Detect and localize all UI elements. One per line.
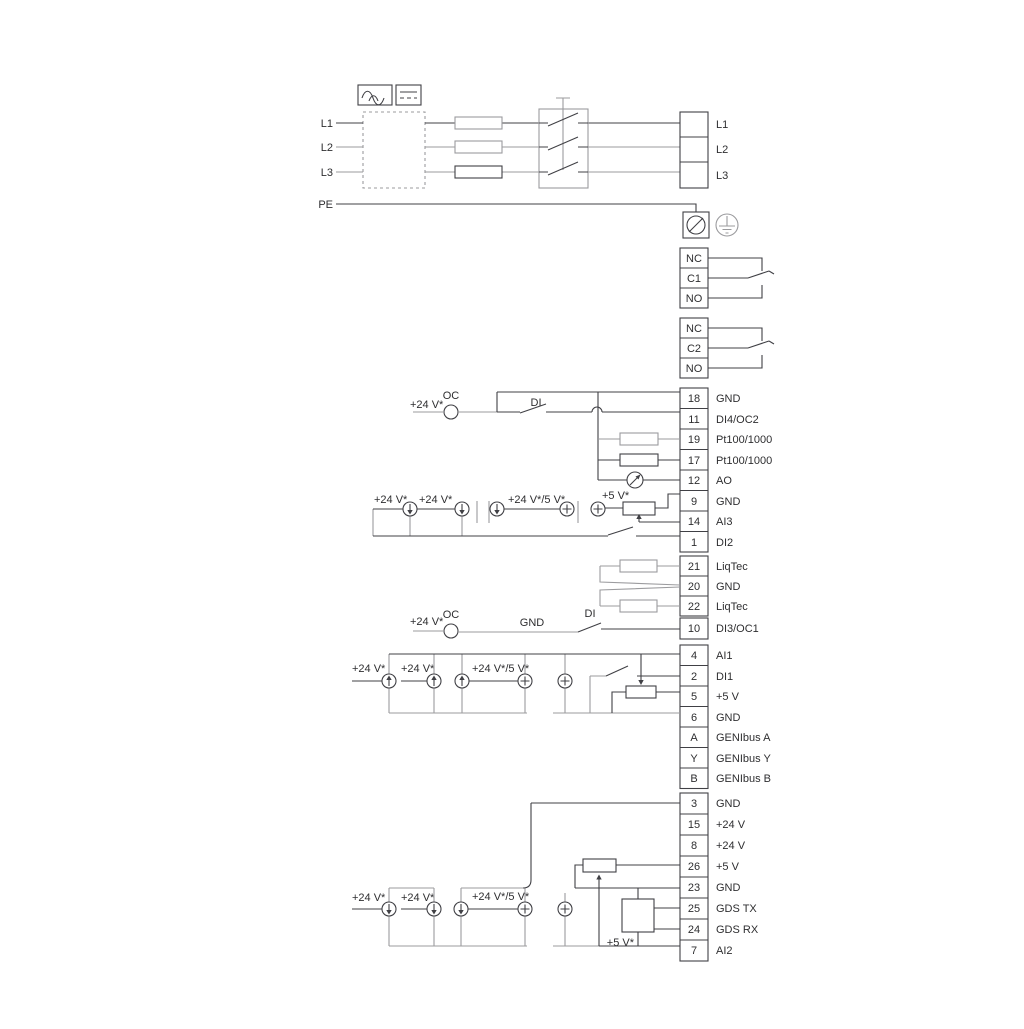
plus5-label-b: +5 V*	[602, 490, 630, 502]
relay2-nc: NC	[686, 323, 702, 335]
mains-out-block: L1 L2 L3	[680, 112, 728, 188]
ta-label: GENIbus A	[716, 732, 771, 744]
t22-num: 22	[688, 601, 700, 613]
t24-label: GDS RX	[716, 924, 759, 936]
t21-num: 21	[688, 561, 700, 573]
t5-num: 5	[691, 691, 697, 703]
mains-out-terminals	[680, 112, 708, 188]
t15-label: +24 V	[716, 819, 746, 831]
oc-collector-icon-c	[444, 624, 458, 638]
ai1-potentiometer	[626, 686, 656, 698]
gnd-label-c: GND	[520, 617, 545, 629]
ai1-options: +24 V* +24 V* +24 V*/5 V*	[352, 654, 680, 713]
pt100-resistor-2	[620, 454, 658, 466]
relay2-contact	[708, 328, 774, 368]
t25-num: 25	[688, 903, 700, 915]
t23-num: 23	[688, 882, 700, 894]
t6-num: 6	[691, 712, 697, 724]
di3-switch	[578, 623, 680, 632]
liqtec-sensor-1	[620, 560, 657, 572]
t9-label: GND	[716, 496, 741, 508]
fuse-l1	[455, 117, 502, 129]
t7-num: 7	[691, 945, 697, 957]
relay1-no: NO	[686, 293, 703, 305]
relay1-contact	[708, 258, 774, 298]
out-l2-label: L2	[716, 144, 728, 156]
disconnect-switch	[539, 98, 588, 188]
t18-label: GND	[716, 393, 741, 405]
ty-label: GENIbus Y	[716, 753, 771, 765]
ty-num: Y	[690, 753, 698, 765]
relay2-c2: C2	[687, 343, 701, 355]
di-label-c: DI	[585, 608, 596, 620]
relay1-c1: C1	[687, 273, 701, 285]
t1-num: 1	[691, 537, 697, 549]
t18-num: 18	[688, 393, 700, 405]
pe-ground-terminals	[683, 212, 738, 238]
fuse-l3	[455, 166, 502, 178]
plus245-label-e: +24 V*/5 V*	[472, 891, 530, 903]
t4-num: 4	[691, 650, 697, 662]
relay2-section: NC C2 NO	[680, 318, 774, 378]
t14-num: 14	[688, 516, 700, 528]
relay1-nc: NC	[686, 253, 702, 265]
pt100-resistor-1	[620, 433, 658, 445]
t5-label: +5 V	[716, 691, 740, 703]
t15-num: 15	[688, 819, 700, 831]
tb-label: GENIbus B	[716, 773, 771, 785]
phase-l2-label: L2	[321, 142, 333, 154]
t17-num: 17	[688, 455, 700, 467]
tb-num: B	[690, 773, 697, 785]
t19-label: Pt100/1000	[716, 434, 772, 446]
t25-label: GDS TX	[716, 903, 757, 915]
t6-label: GND	[716, 712, 741, 724]
ai2-options: +24 V* +24 V* +24 V*/5 V* +5 V*	[352, 803, 680, 949]
wire-hop-a	[592, 407, 602, 412]
t2-num: 2	[691, 671, 697, 683]
plus24-label-d2: +24 V*	[401, 663, 435, 675]
strip-a: 18GND 11DI4/OC2 19Pt100/1000 17Pt100/100…	[680, 388, 772, 552]
relay1-section: NC C1 NO	[680, 248, 774, 308]
ai2-pot-wiper-arrow	[596, 875, 601, 880]
t2-label: DI1	[716, 671, 733, 683]
pump-wiring-diagram: L1 L2 L3 PE L1 L2 L3	[0, 0, 1024, 1024]
di-switch-wiring-a	[497, 392, 680, 480]
t17-label: Pt100/1000	[716, 455, 772, 467]
oc-label-c: OC	[443, 609, 460, 621]
ai3-options: +24 V* +24 V* +24 V*/5 V* +5 V*	[373, 490, 680, 536]
t3-num: 3	[691, 798, 697, 810]
phase-pe-label: PE	[318, 199, 333, 211]
oc-di-circuit-top: +24 V* OC DI	[410, 390, 680, 488]
t9-num: 9	[691, 496, 697, 508]
plus24-label-e1: +24 V*	[352, 892, 386, 904]
phase-l1-label: L1	[321, 118, 333, 130]
t7-label: AI2	[716, 945, 733, 957]
t3-label: GND	[716, 798, 741, 810]
pe-wire	[336, 204, 696, 212]
plus24-label-b1: +24 V*	[374, 494, 408, 506]
t24-num: 24	[688, 924, 700, 936]
plus24-label-c: +24 V*	[410, 616, 444, 628]
plus24-label-b2: +24 V*	[419, 494, 453, 506]
t22-label: LiqTec	[716, 601, 748, 613]
plus24-label-e2: +24 V*	[401, 892, 435, 904]
strip-c: 4AI1 2DI1 5+5 V 6GND AGENIbus A YGENIbus…	[680, 645, 771, 789]
out-l3-label: L3	[716, 170, 728, 182]
t8-label: +24 V	[716, 840, 746, 852]
relay2-no: NO	[686, 363, 703, 375]
t12-label: AO	[716, 475, 732, 487]
t26-num: 26	[688, 861, 700, 873]
liqtec-section: 21LiqTec 20GND 22LiqTec	[600, 556, 748, 616]
t11-label: DI4/OC2	[716, 414, 759, 426]
out-l1-label: L1	[716, 119, 728, 131]
oc-collector-icon-a	[444, 405, 458, 419]
ai1-pot-wiper-arrow	[638, 680, 643, 685]
t1-label: DI2	[716, 537, 733, 549]
plus5-label-e: +5 V*	[607, 937, 635, 949]
plus24-label-d1: +24 V*	[352, 663, 386, 675]
t19-num: 19	[688, 434, 700, 446]
wiring-diagram-page: L1 L2 L3 PE L1 L2 L3	[0, 0, 1024, 1024]
plus245-label-d: +24 V*/5 V*	[472, 663, 530, 675]
liqtec-sensor-2	[620, 600, 657, 612]
oc-label-a: OC	[443, 390, 460, 402]
plus24-label-a: +24 V*	[410, 399, 444, 411]
ai3-potentiometer	[623, 502, 655, 515]
t10-num: 10	[688, 623, 700, 635]
drive-dashed-box	[363, 112, 425, 188]
t26-label: +5 V	[716, 861, 740, 873]
strip-d: 3GND 15+24 V 8+24 V 26+5 V 23GND 25GDS T…	[680, 793, 759, 961]
ai2-potentiometer	[583, 859, 616, 872]
plus245-label-b: +24 V*/5 V*	[508, 494, 566, 506]
t4-label: AI1	[716, 650, 733, 662]
gds-sensor-box	[622, 899, 654, 932]
t20-label: GND	[716, 581, 741, 593]
ac-sine-icon	[362, 91, 384, 105]
t20-num: 20	[688, 581, 700, 593]
di3-feed-wires	[413, 631, 578, 632]
ta-num: A	[690, 732, 698, 744]
fuse-l2	[455, 141, 502, 153]
t11-num: 11	[688, 414, 699, 426]
dc-symbol-box	[396, 85, 421, 105]
t12-num: 12	[688, 475, 700, 487]
t10-label: DI3/OC1	[716, 623, 759, 635]
phase-l3-label: L3	[321, 167, 333, 179]
t8-num: 8	[691, 840, 697, 852]
t14-label: AI3	[716, 516, 733, 528]
t23-label: GND	[716, 882, 741, 894]
t21-label: LiqTec	[716, 561, 748, 573]
power-section: L1 L2 L3 PE L1 L2 L3	[318, 85, 738, 238]
